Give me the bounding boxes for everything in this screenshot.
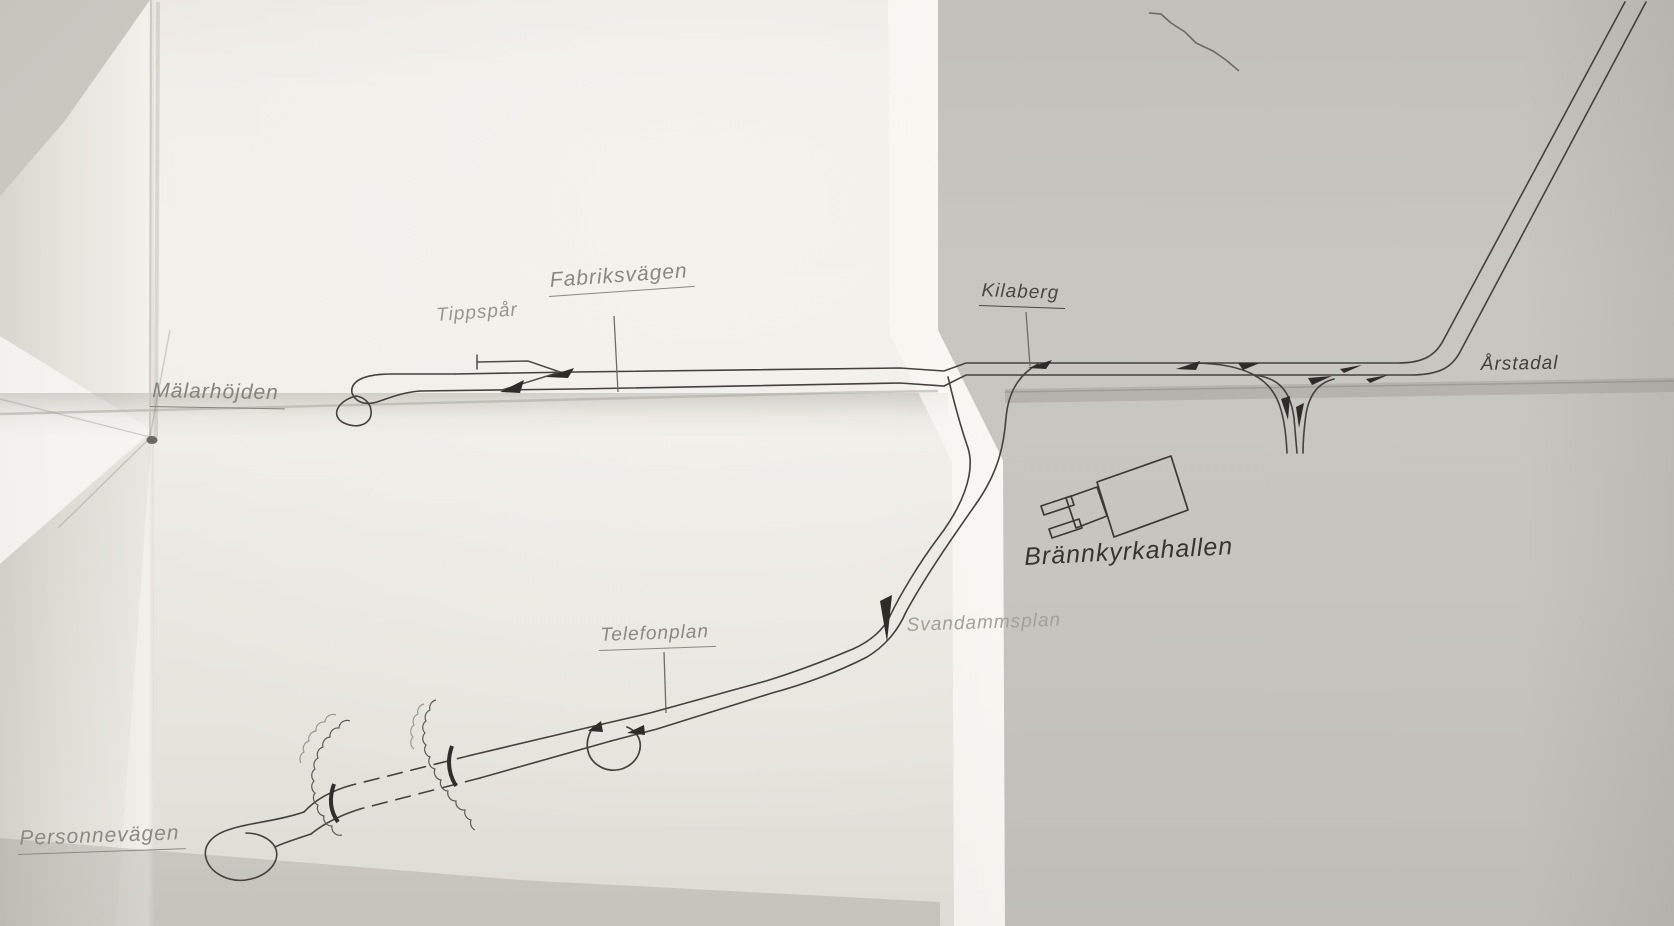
label-malarhojden: Mälarhöjden bbox=[150, 379, 285, 409]
label-telefonplan: Telefonplan bbox=[598, 621, 715, 651]
direction-arrow bbox=[880, 595, 892, 642]
main-line-tracks bbox=[420, 2, 1646, 391]
label-arstadal: Årstadal bbox=[1481, 353, 1559, 376]
paper-crack bbox=[1149, 13, 1239, 71]
scanned-track-diagram: Mälarhöjden Tippspår Fabriksvägen Kilabe… bbox=[0, 0, 1674, 926]
kilaberg-junction-branch bbox=[603, 360, 1052, 741]
telefonplan-tick bbox=[664, 652, 666, 713]
malarhojden-balloon-loop bbox=[337, 374, 455, 426]
tunnel-portal-mark bbox=[449, 746, 456, 786]
label-kilaberg: Kilaberg bbox=[979, 280, 1066, 309]
paper-crease-marks bbox=[0, 0, 1674, 528]
tunnel-tree-marks bbox=[300, 700, 475, 835]
kilaberg-tick bbox=[1026, 312, 1030, 366]
southwest-branch-tracks bbox=[304, 724, 611, 834]
label-personnevagen: Personnevägen bbox=[17, 821, 186, 855]
road-tick-marks bbox=[614, 312, 1030, 713]
personnevagen-balloon-loop bbox=[205, 812, 311, 880]
track-drawing bbox=[0, 0, 1674, 926]
paper-tear-spot bbox=[147, 436, 158, 444]
building-symbol bbox=[1041, 456, 1188, 538]
fabriksvagen-tick bbox=[614, 316, 618, 392]
